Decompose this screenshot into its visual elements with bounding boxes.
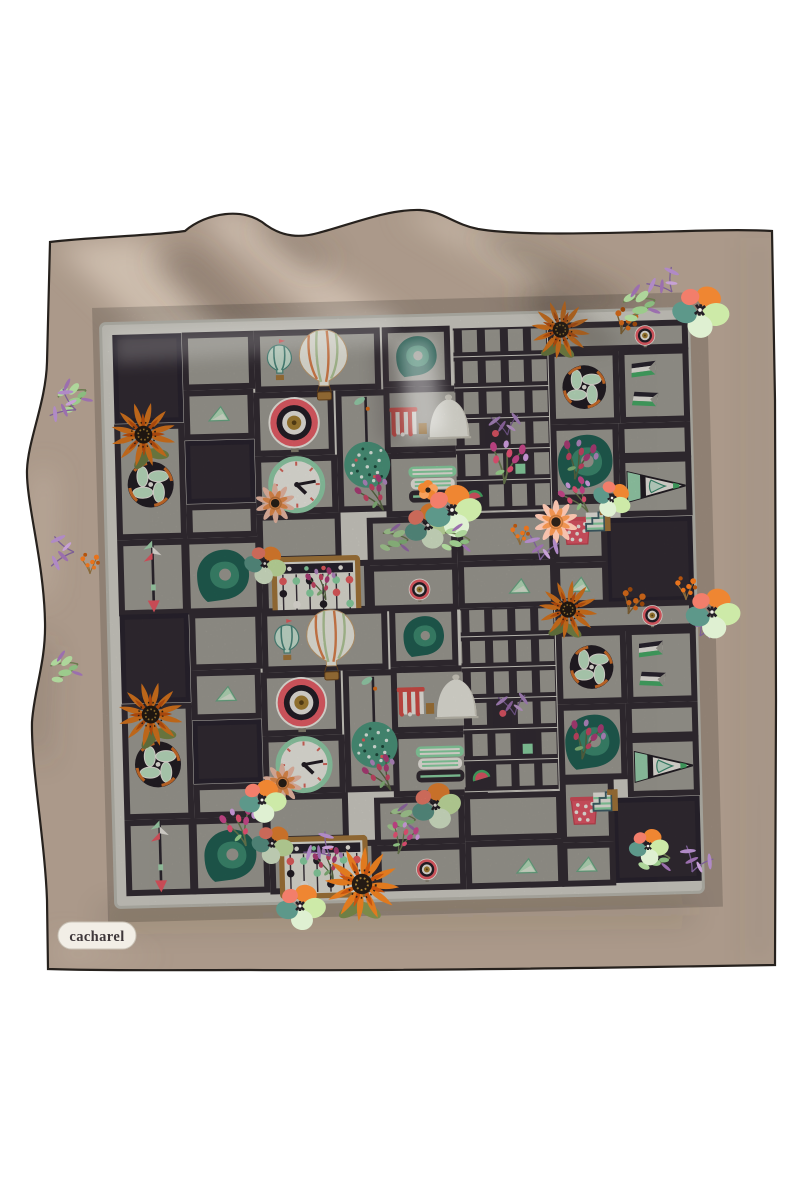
scarf-product-image: cacharel bbox=[0, 0, 800, 1200]
product-photo-stage: cacharel bbox=[0, 0, 800, 1200]
brand-logo-text: cacharel bbox=[69, 929, 124, 945]
scarf: cacharel bbox=[24, 210, 776, 970]
brand-badge: cacharel bbox=[58, 922, 136, 949]
